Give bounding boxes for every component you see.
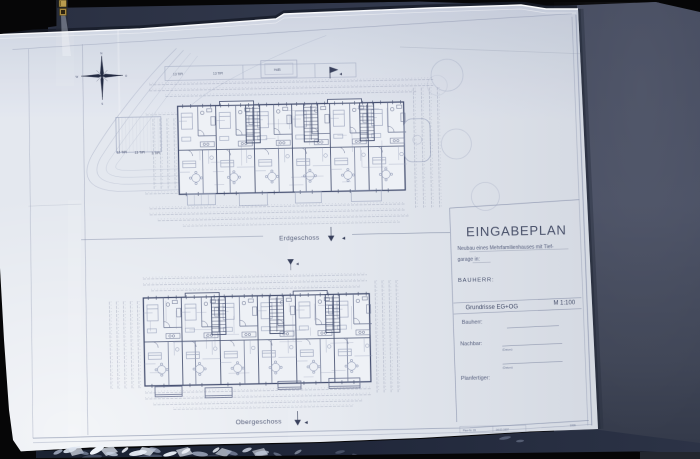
svg-text:Planfertiger:: Planfertiger: (461, 375, 490, 382)
svg-text:S: S (101, 102, 103, 106)
svg-text:(Datum): (Datum) (502, 347, 512, 351)
svg-text:W: W (75, 75, 78, 79)
svg-text:EINGABEPLAN: EINGABEPLAN (466, 222, 567, 239)
svg-text:(Datum): (Datum) (503, 365, 513, 369)
svg-text:N: N (100, 51, 102, 55)
svg-text:13 TiPl: 13 TiPl (173, 72, 183, 76)
svg-text:HdB: HdB (274, 68, 281, 72)
svg-text:04.03.1997: 04.03.1997 (496, 427, 510, 431)
svg-text:13 TiPl: 13 TiPl (134, 151, 145, 155)
svg-text:12 TiPl: 12 TiPl (116, 150, 127, 154)
svg-text:Erdgeschoss: Erdgeschoss (279, 234, 319, 242)
svg-text:3 TiPl: 3 TiPl (151, 151, 160, 155)
svg-text:1009: 1009 (570, 423, 576, 427)
svg-text:M 1:100: M 1:100 (553, 300, 575, 306)
svg-text:Plan-Nr. 03: Plan-Nr. 03 (463, 428, 477, 432)
svg-text:garage in:: garage in: (458, 257, 480, 263)
svg-text:Bauherr:: Bauherr: (462, 320, 483, 326)
svg-text:BAUHERR:: BAUHERR: (458, 277, 494, 284)
svg-text:Grundrisse EG+OG: Grundrisse EG+OG (465, 304, 518, 311)
svg-text:Nachbar:: Nachbar: (460, 341, 482, 347)
svg-text:Obergeschoss: Obergeschoss (236, 418, 283, 426)
svg-text:13 TiPl: 13 TiPl (213, 71, 223, 75)
